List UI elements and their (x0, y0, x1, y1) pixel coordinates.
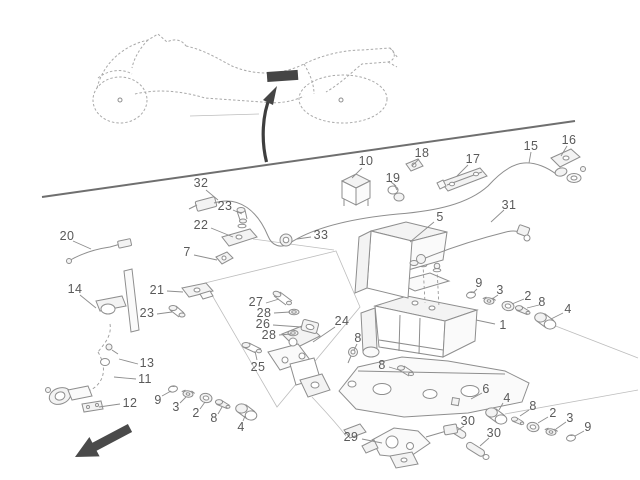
part-number-label: 18 (415, 146, 430, 160)
part-callout-4: 4 (237, 416, 245, 434)
part-callout-4: 4 (551, 302, 572, 319)
parts-diagram-canvas: 1032232233718171915163152014212327282628… (0, 0, 640, 480)
part-drawing-battery-box-5 (355, 222, 447, 298)
motorcycle-sketch (93, 34, 398, 123)
part-number-label: 22 (194, 218, 209, 232)
part-drawing-bracket-22 (222, 229, 257, 246)
part-callout-11: 11 (114, 372, 152, 386)
part-drawing-sensor-wire-11 (76, 352, 103, 392)
location-pointer-arrow (263, 86, 277, 162)
part-drawing-washer-28-upper (289, 309, 299, 315)
part-callout-30: 30 (480, 426, 501, 446)
part-number-label: 2 (549, 406, 556, 420)
part-drawing-bracket-21 (182, 283, 213, 299)
part-callout-1: 1 (476, 318, 507, 332)
part-number-label: 8 (529, 399, 536, 413)
part-number-label: 4 (237, 420, 244, 434)
part-number-label: 16 (562, 133, 577, 147)
part-number-label: 25 (251, 360, 266, 374)
part-drawing-bolt-23-lower (169, 306, 185, 318)
part-drawing-bolt-23-upper (237, 208, 247, 228)
part-drawing-harness-connector-32 (189, 197, 217, 212)
part-callout-14: 14 (68, 282, 96, 308)
part-callout-23: 23 (140, 306, 172, 320)
part-number-label: 15 (524, 139, 539, 153)
part-number-label: 31 (502, 198, 517, 212)
part-drawing-bolt-27 (272, 290, 292, 305)
part-number-label: 6 (482, 382, 489, 396)
part-callout-20: 20 (60, 229, 91, 249)
part-number-label: 3 (172, 400, 179, 414)
part-number-label: 20 (60, 229, 75, 243)
diagram-border-line (42, 121, 575, 197)
part-callout-30: 30 (458, 414, 475, 430)
part-drawing-washer-28-lower (288, 330, 298, 336)
front-direction-arrow-icon (75, 424, 132, 457)
part-drawing-clamp-7 (216, 252, 233, 264)
part-number-label: 30 (487, 426, 502, 440)
location-highlight (267, 70, 299, 82)
part-number-label: 17 (466, 152, 481, 166)
part-number-label: 23 (140, 306, 155, 320)
part-number-label: 3 (496, 283, 503, 297)
part-number-label: 24 (335, 314, 350, 328)
part-callout-33: 33 (297, 228, 328, 242)
part-number-label: 23 (218, 199, 233, 213)
part-callout-10: 10 (352, 154, 373, 178)
part-number-label: 9 (584, 420, 591, 434)
part-callout-7: 7 (183, 245, 217, 260)
part-drawing-clamp-18 (406, 159, 423, 171)
part-callout-31: 31 (491, 198, 516, 222)
part-callout-3: 3 (556, 411, 574, 429)
part-drawing-sensor-bracket-14 (96, 269, 139, 352)
diagram-page: 1032232233718171915163152014212327282628… (0, 0, 640, 480)
part-drawing-bracket-16 (551, 149, 586, 183)
part-number-label: 14 (68, 282, 83, 296)
part-number-label: 2 (192, 406, 199, 420)
part-drawing-grommet-33 (280, 234, 292, 246)
part-number-label: 8 (538, 295, 545, 309)
part-callout-3: 3 (172, 397, 186, 414)
part-callout-2: 2 (512, 289, 532, 304)
part-number-label: 29 (344, 430, 359, 444)
rear-hub (339, 98, 343, 102)
part-callout-22: 22 (194, 218, 233, 237)
part-drawing-abs-unit-1 (361, 296, 477, 357)
part-drawing-relay-10 (342, 174, 370, 206)
part-number-label: 9 (475, 276, 482, 290)
part-callout-25: 25 (251, 351, 266, 374)
part-callout-9: 9 (473, 276, 483, 293)
part-callout-3: 3 (492, 283, 504, 299)
front-hub (118, 98, 122, 102)
part-number-label: 7 (183, 245, 190, 259)
part-callout-21: 21 (150, 283, 183, 297)
part-callout-32: 32 (194, 176, 218, 200)
part-number-label: 9 (154, 393, 161, 407)
part-number-label: 3 (566, 411, 573, 425)
part-callout-13: 13 (119, 356, 154, 370)
part-callout-8: 8 (210, 407, 222, 425)
part-number-label: 4 (503, 391, 510, 405)
part-number-label: 8 (378, 358, 385, 372)
part-callout-2: 2 (192, 402, 205, 420)
part-number-label: 8 (354, 331, 361, 345)
part-number-label: 2 (524, 289, 531, 303)
part-number-label: 30 (461, 414, 476, 428)
part-callout-2: 2 (538, 406, 557, 423)
front-wheel-outline (93, 77, 147, 123)
part-callout-9: 9 (575, 420, 592, 436)
part-number-label: 10 (359, 154, 374, 168)
part-number-label: 12 (123, 396, 138, 410)
part-number-label: 33 (314, 228, 329, 242)
part-callout-12: 12 (99, 396, 137, 410)
part-callout-24: 24 (313, 314, 349, 342)
part-number-label: 19 (386, 171, 401, 185)
part-drawing-speed-sensor-12 (46, 385, 104, 412)
part-callout-9: 9 (154, 391, 171, 407)
part-number-label: 32 (194, 176, 209, 190)
part-number-label: 11 (138, 372, 152, 386)
part-number-label: 4 (564, 302, 571, 316)
part-drawing-washer-8-left (348, 348, 358, 364)
part-drawing-bracket-assembly-24 (268, 324, 330, 397)
part-callout-15: 15 (524, 139, 539, 163)
mounting-plane-outline (205, 251, 360, 407)
part-drawing-fittings-13 (101, 344, 119, 366)
part-number-label: 21 (150, 283, 165, 297)
part-drawing-assembly-29 (344, 424, 458, 468)
part-number-label: 1 (499, 318, 506, 332)
part-number-label: 5 (436, 210, 443, 224)
part-callout-8: 8 (354, 331, 362, 350)
part-number-label: 28 (262, 328, 277, 342)
part-number-label: 13 (140, 356, 155, 370)
part-number-label: 8 (210, 411, 217, 425)
